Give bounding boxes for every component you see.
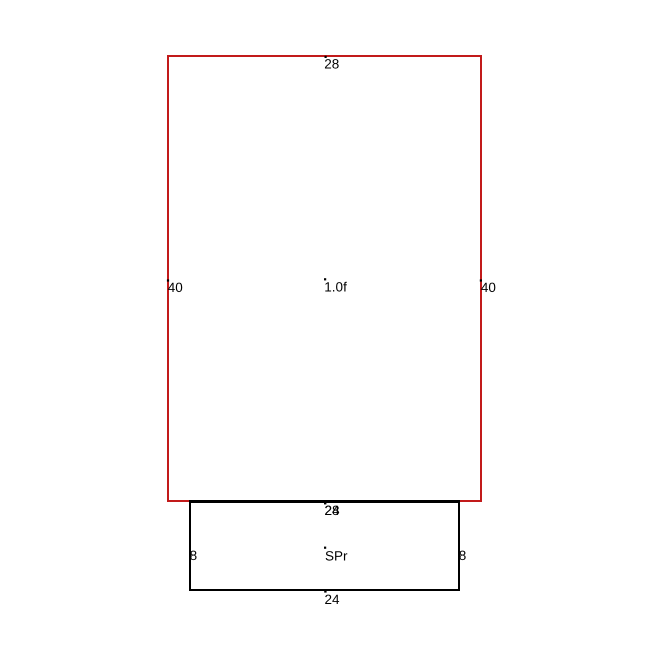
svg-text:24: 24 xyxy=(325,592,341,607)
svg-text:SPr: SPr xyxy=(325,548,348,563)
svg-text:28: 28 xyxy=(324,57,339,72)
svg-text:8: 8 xyxy=(459,548,467,563)
svg-text:1.0f: 1.0f xyxy=(324,280,347,295)
svg-text:24: 24 xyxy=(325,503,341,518)
svg-text:40: 40 xyxy=(168,280,183,295)
svg-text:40: 40 xyxy=(481,280,496,295)
svg-text:8: 8 xyxy=(190,548,198,563)
